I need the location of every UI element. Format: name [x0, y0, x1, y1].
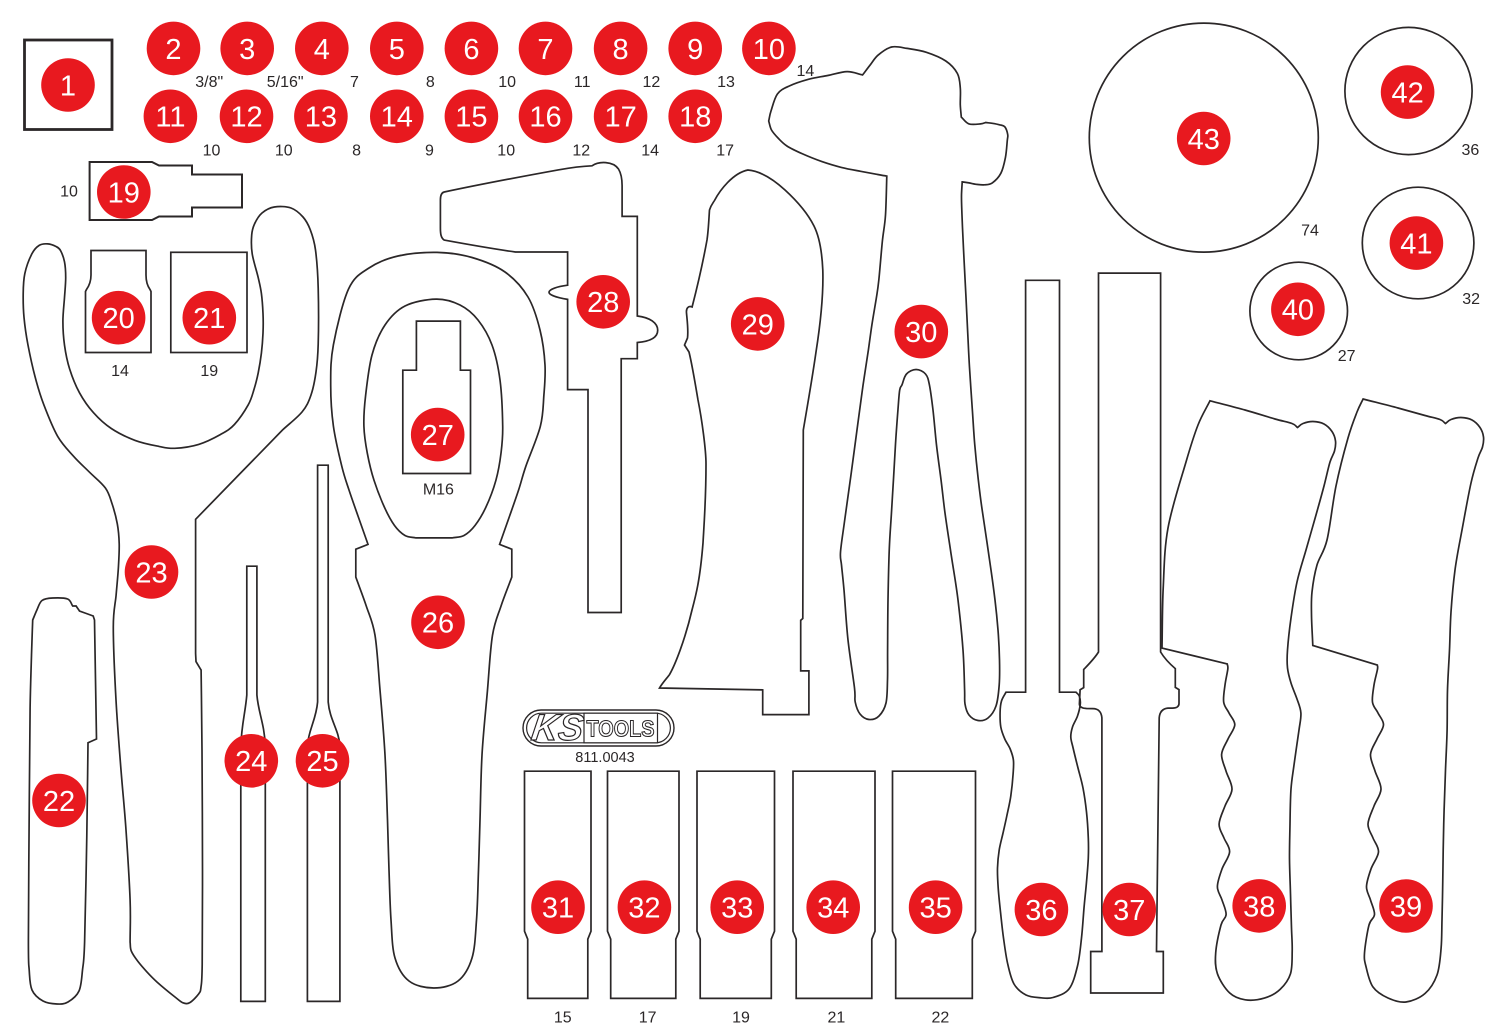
- svg-text:24: 24: [235, 746, 267, 778]
- svg-text:32: 32: [628, 893, 660, 925]
- svg-text:10: 10: [275, 142, 293, 159]
- svg-text:23: 23: [135, 557, 167, 589]
- svg-text:38: 38: [1243, 891, 1275, 923]
- svg-text:6: 6: [463, 34, 479, 66]
- svg-text:30: 30: [905, 317, 937, 349]
- svg-text:26: 26: [422, 608, 454, 640]
- svg-text:22: 22: [932, 1010, 950, 1027]
- svg-text:25: 25: [306, 746, 338, 778]
- svg-text:12: 12: [643, 74, 661, 91]
- svg-text:27: 27: [422, 420, 454, 452]
- svg-text:22: 22: [43, 786, 75, 818]
- svg-text:37: 37: [1113, 895, 1145, 927]
- svg-text:33: 33: [721, 893, 753, 925]
- svg-text:14: 14: [381, 102, 413, 134]
- svg-text:5: 5: [389, 34, 405, 66]
- svg-text:2: 2: [165, 34, 181, 66]
- svg-text:29: 29: [742, 309, 774, 341]
- svg-text:43: 43: [1188, 124, 1220, 156]
- svg-text:8: 8: [352, 142, 361, 159]
- svg-text:74: 74: [1301, 223, 1319, 240]
- svg-text:28: 28: [587, 287, 619, 319]
- svg-text:18: 18: [679, 102, 711, 134]
- svg-text:3/8": 3/8": [195, 74, 223, 91]
- svg-text:21: 21: [193, 303, 225, 335]
- svg-text:11: 11: [155, 102, 185, 134]
- svg-text:36: 36: [1462, 142, 1480, 159]
- svg-text:7: 7: [537, 34, 553, 66]
- svg-text:13: 13: [305, 102, 337, 134]
- svg-text:14: 14: [111, 363, 129, 380]
- svg-text:10: 10: [203, 142, 221, 159]
- svg-text:KS: KS: [529, 706, 586, 748]
- svg-text:1: 1: [60, 70, 76, 102]
- svg-text:21: 21: [828, 1010, 846, 1027]
- svg-text:39: 39: [1390, 891, 1422, 923]
- svg-text:20: 20: [102, 303, 134, 335]
- svg-text:35: 35: [919, 893, 951, 925]
- svg-text:40: 40: [1282, 295, 1314, 327]
- svg-text:7: 7: [350, 74, 359, 91]
- svg-text:9: 9: [687, 34, 703, 66]
- svg-text:811.0043: 811.0043: [575, 750, 634, 766]
- svg-text:8: 8: [613, 34, 629, 66]
- svg-text:10: 10: [497, 142, 515, 159]
- svg-text:10: 10: [753, 34, 785, 66]
- svg-text:4: 4: [314, 34, 330, 66]
- svg-text:27: 27: [1338, 348, 1356, 365]
- svg-text:15: 15: [554, 1010, 572, 1027]
- svg-text:9: 9: [425, 142, 434, 159]
- svg-text:14: 14: [641, 142, 659, 159]
- svg-text:3: 3: [239, 34, 255, 66]
- svg-text:M16: M16: [423, 482, 454, 499]
- svg-text:5/16": 5/16": [267, 74, 304, 91]
- svg-text:15: 15: [455, 102, 487, 134]
- svg-text:17: 17: [716, 142, 734, 159]
- svg-text:14: 14: [797, 63, 815, 80]
- svg-text:17: 17: [604, 102, 636, 134]
- svg-text:36: 36: [1025, 895, 1057, 927]
- svg-text:TOOLS: TOOLS: [587, 716, 655, 742]
- svg-text:10: 10: [60, 184, 78, 201]
- svg-text:32: 32: [1462, 291, 1480, 308]
- svg-text:42: 42: [1391, 78, 1423, 110]
- svg-text:16: 16: [529, 102, 561, 134]
- svg-text:12: 12: [572, 142, 590, 159]
- svg-text:19: 19: [732, 1010, 750, 1027]
- svg-text:12: 12: [230, 102, 262, 134]
- svg-text:34: 34: [817, 893, 849, 925]
- svg-text:8: 8: [426, 74, 435, 91]
- svg-text:31: 31: [542, 893, 574, 925]
- svg-text:19: 19: [108, 177, 140, 209]
- svg-text:10: 10: [498, 74, 516, 91]
- svg-text:13: 13: [717, 74, 735, 91]
- svg-text:17: 17: [639, 1010, 657, 1027]
- svg-text:41: 41: [1400, 229, 1432, 261]
- svg-text:19: 19: [200, 363, 218, 380]
- svg-text:11: 11: [574, 74, 591, 91]
